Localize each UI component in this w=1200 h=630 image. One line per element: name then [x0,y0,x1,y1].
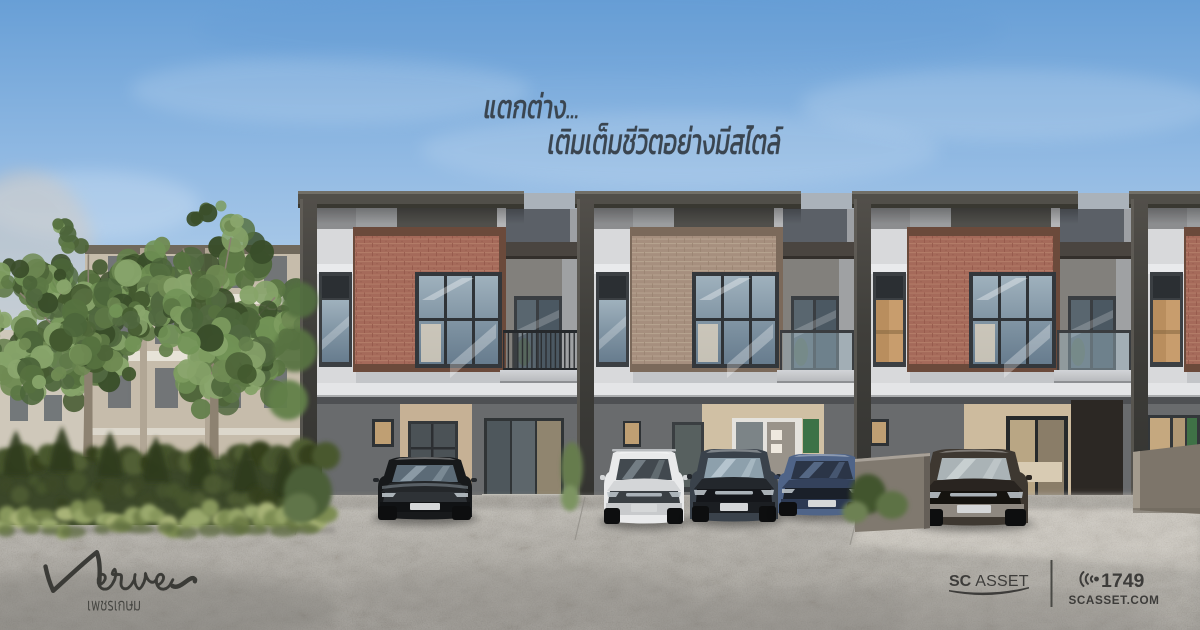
svg-text:1749: 1749 [1101,570,1145,592]
svg-text:SCASSET.COM: SCASSET.COM [1068,594,1159,607]
svg-text:SCASSET: SCASSET [949,573,1029,590]
